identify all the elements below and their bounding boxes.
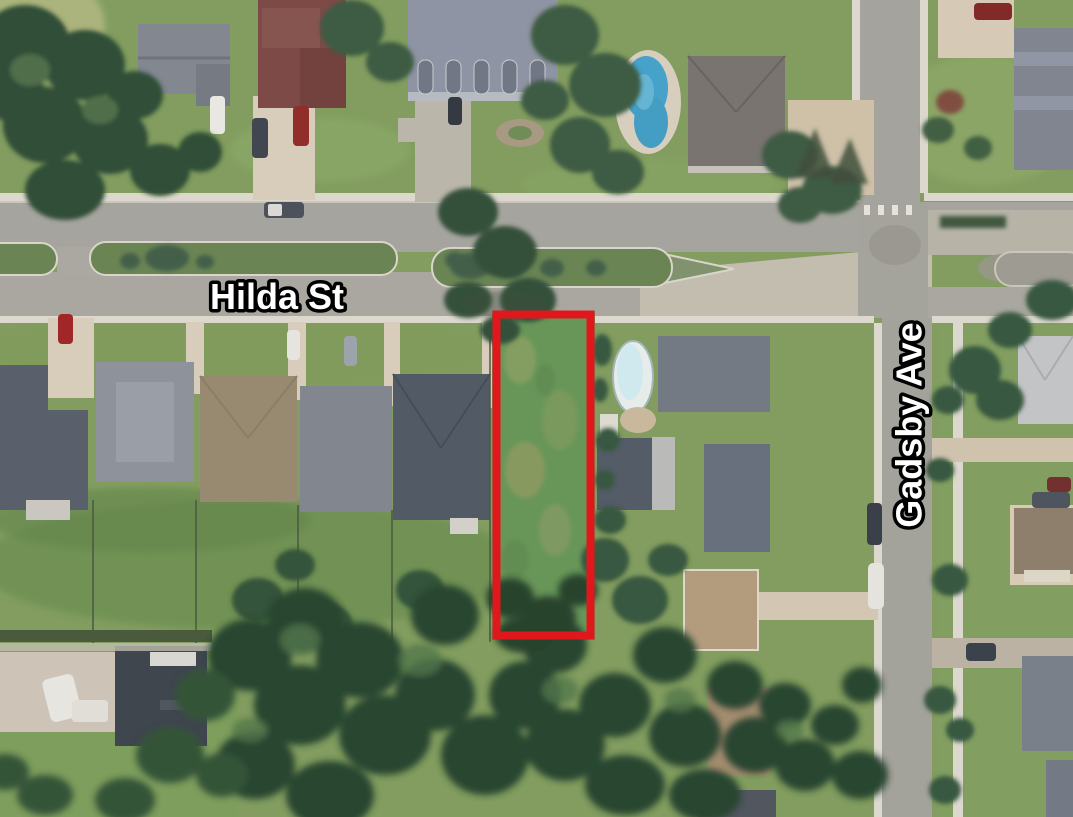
street-label-gadsby: Gadsby Ave (889, 322, 930, 527)
aerial-map: Hilda St Gadsby Ave (0, 0, 1073, 817)
street-label-hilda: Hilda St (210, 276, 344, 317)
aerial-imagery: Hilda St Gadsby Ave (0, 0, 1073, 817)
